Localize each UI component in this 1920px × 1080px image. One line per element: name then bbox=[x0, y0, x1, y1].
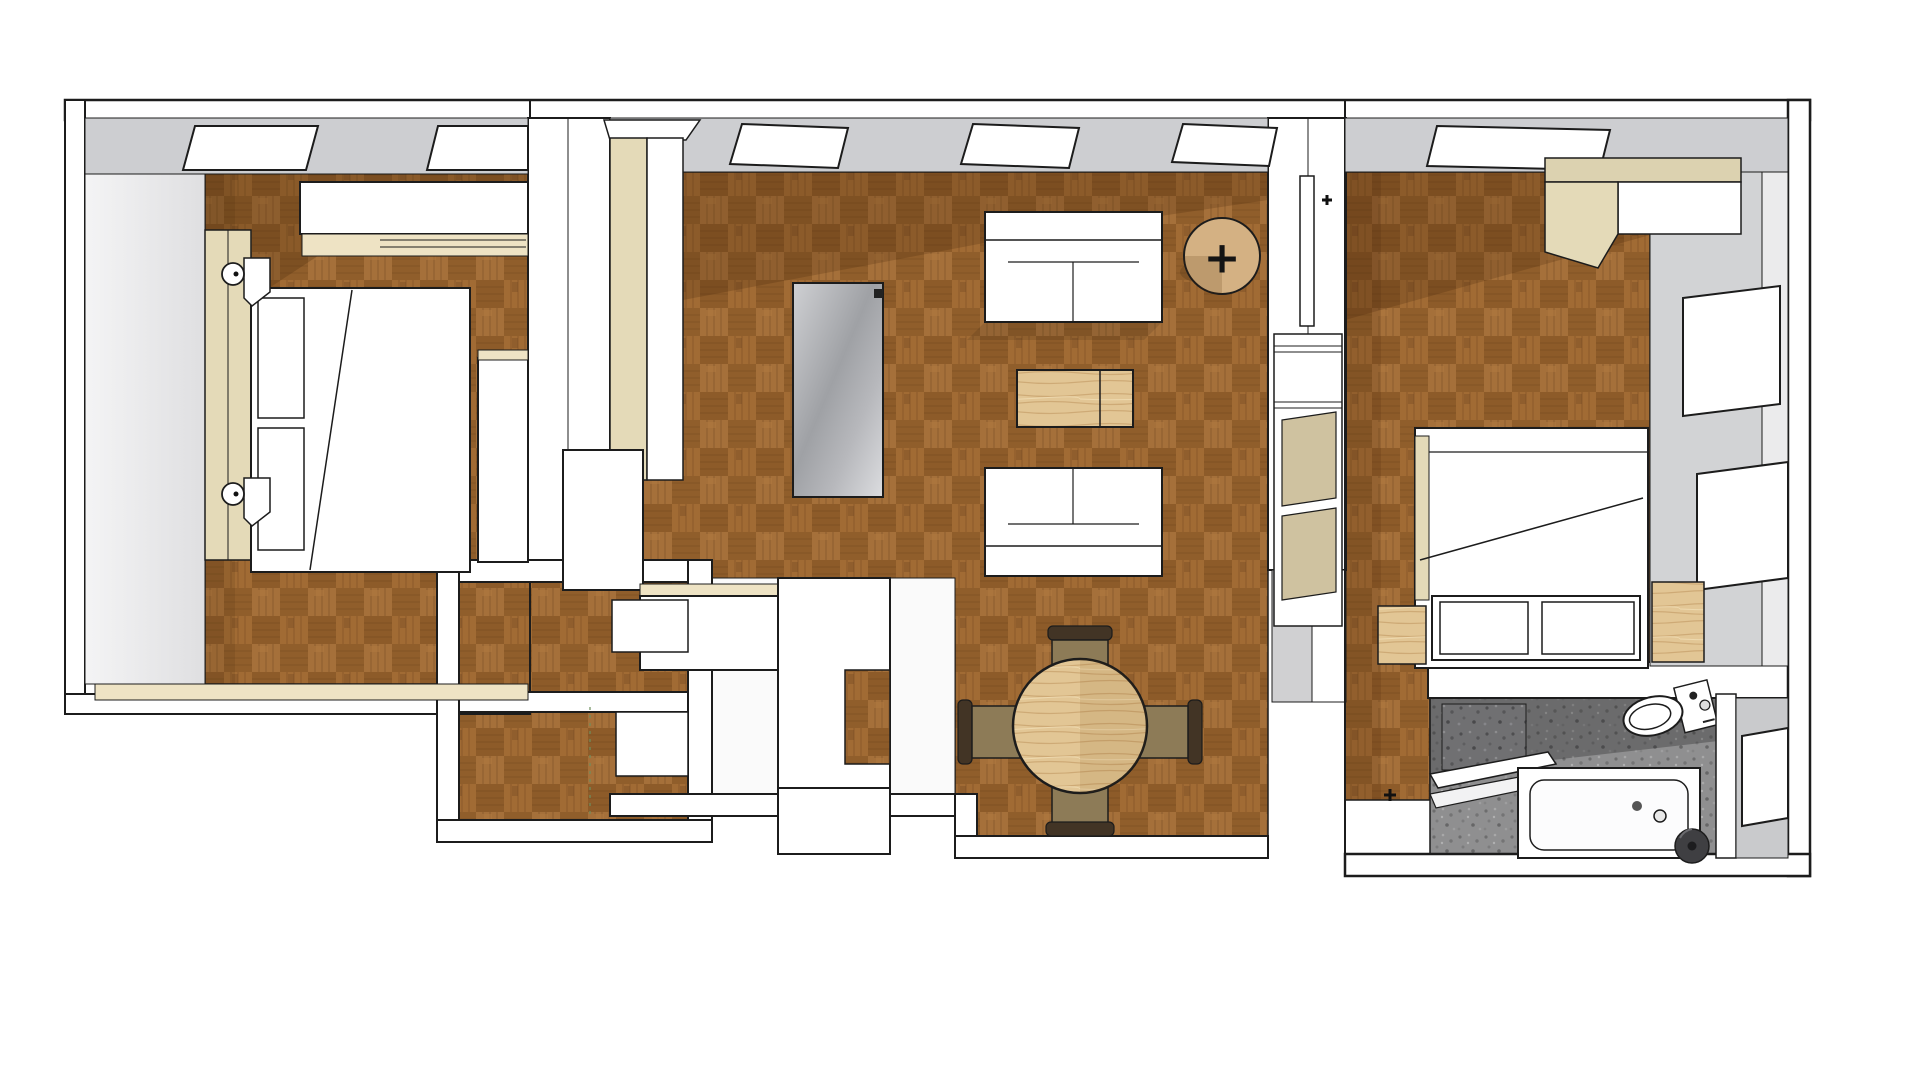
dark-stool bbox=[1675, 829, 1709, 863]
shelf-box-1 bbox=[612, 600, 688, 652]
dresser-left-top-edge bbox=[478, 350, 528, 360]
bedroom-left-window-ledge bbox=[95, 684, 528, 700]
bedroom-left-side-wall-face bbox=[85, 174, 205, 684]
coffee-table bbox=[1017, 370, 1133, 427]
bathtub-drain bbox=[1632, 801, 1642, 811]
storage-wall-left bbox=[437, 560, 459, 842]
window-top-5 bbox=[1172, 124, 1277, 166]
window-right-1 bbox=[1683, 286, 1780, 416]
sofa-bottom bbox=[985, 468, 1162, 576]
outer-wall-left bbox=[65, 100, 85, 714]
shelf-box-2 bbox=[616, 712, 688, 776]
window-top-1 bbox=[183, 126, 318, 170]
bed-right bbox=[1415, 428, 1648, 668]
bathroom-partition-wall bbox=[1716, 694, 1736, 858]
window-top-2 bbox=[427, 126, 528, 170]
bathtub bbox=[1518, 768, 1700, 858]
wardrobe-left-front bbox=[302, 234, 528, 256]
side-table-plus-label: + bbox=[1204, 233, 1241, 284]
floorplan-render: + bbox=[0, 0, 1920, 1080]
dresser-left bbox=[478, 358, 528, 562]
outer-wall-top bbox=[65, 100, 1810, 120]
door-leaf-bedroom-right bbox=[1300, 176, 1314, 326]
bed-left-pillow-1 bbox=[258, 298, 304, 418]
dining-wall-bottom bbox=[955, 836, 1268, 858]
nightstand-left bbox=[1378, 606, 1426, 664]
window-top-3 bbox=[730, 124, 848, 168]
living-top-wall-face bbox=[610, 118, 1268, 172]
media-panel bbox=[793, 283, 883, 497]
outer-wall-right bbox=[1788, 100, 1810, 876]
wardrobe-left-top bbox=[300, 182, 528, 234]
bathtub-faucet bbox=[1654, 810, 1666, 822]
nightstand-right bbox=[1652, 582, 1704, 662]
bedroom-right-side-wall-bright bbox=[1762, 172, 1788, 666]
window-right-3 bbox=[1742, 728, 1788, 826]
wall-shelf-unit bbox=[1274, 334, 1342, 626]
window-top-4 bbox=[961, 124, 1079, 168]
window-right-2 bbox=[1697, 462, 1788, 590]
floorplan-canvas: + bbox=[0, 0, 1920, 1080]
storage-wall-bottom bbox=[437, 820, 712, 842]
footboard-panel-1 bbox=[1440, 602, 1528, 654]
footboard-panel-2 bbox=[1542, 602, 1634, 654]
sofa-top bbox=[967, 212, 1162, 340]
